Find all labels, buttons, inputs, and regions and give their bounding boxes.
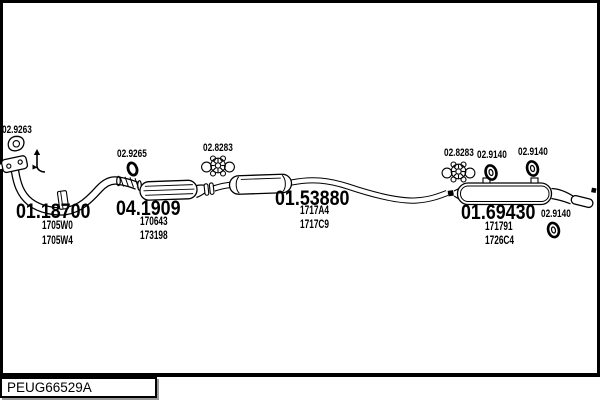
fitting-code-label: 02.9140 — [518, 147, 558, 158]
mounting-direction-arrow-icon — [33, 149, 46, 172]
fitting-code: 02.9265 — [117, 149, 147, 160]
drawing-number: PEUG66529A — [7, 380, 92, 395]
drawing-number-box: PEUG66529A — [0, 377, 157, 398]
oe-ref: 1717A4 — [300, 206, 329, 218]
oe-ref: 1705W4 — [42, 236, 73, 248]
gasket-icon — [8, 136, 24, 150]
oe-ref: 1717C9 — [300, 220, 329, 232]
part-code-label: 01.18700 — [16, 201, 104, 222]
oe-ref-label: 1717C9 — [300, 220, 340, 232]
rubber-mount-icon — [202, 156, 235, 176]
fitting-code: 02.9140 — [477, 150, 507, 161]
oe-ref: 1705W0 — [42, 221, 73, 233]
fitting-code-label: 02.9263 — [2, 125, 42, 136]
clamp-icon — [126, 162, 138, 177]
oe-ref: 1726C4 — [485, 236, 514, 248]
fitting-code: 02.9263 — [2, 125, 32, 136]
fitting-code: 02.8283 — [444, 148, 474, 159]
oe-ref: 173198 — [140, 231, 168, 243]
rubber-ring-icon — [526, 160, 540, 177]
fitting-code-label: 02.9140 — [477, 150, 517, 161]
rubber-ring-icon — [547, 222, 561, 239]
oe-ref-label: 1717A4 — [300, 206, 340, 218]
exhaust-parts-diagram-page: 02.9263 02.9265 02.8283 02.8283 02.9140 … — [0, 0, 600, 400]
fitting-code-label: 02.8283 — [203, 143, 243, 154]
rubber-mount-icon — [442, 162, 475, 182]
oe-ref-label: 170643 — [140, 217, 178, 229]
oe-ref-label: 1705W0 — [42, 221, 85, 233]
oe-ref: 170643 — [140, 217, 168, 229]
oe-ref-label: 173198 — [140, 231, 178, 243]
fitting-code: 02.9140 — [518, 147, 548, 158]
tailpipe-tip — [570, 195, 593, 209]
fitting-code-label: 02.9265 — [117, 149, 157, 160]
oe-ref-label: 1726C4 — [485, 236, 525, 248]
part-code: 01.18700 — [16, 201, 90, 222]
fitting-code: 02.8283 — [203, 143, 233, 154]
oe-ref: 171791 — [485, 222, 513, 234]
front-flange — [0, 155, 28, 174]
oe-ref-label: 1705W4 — [42, 236, 85, 248]
oe-ref-label: 171791 — [485, 222, 523, 234]
joint-flange-pair — [204, 183, 214, 196]
